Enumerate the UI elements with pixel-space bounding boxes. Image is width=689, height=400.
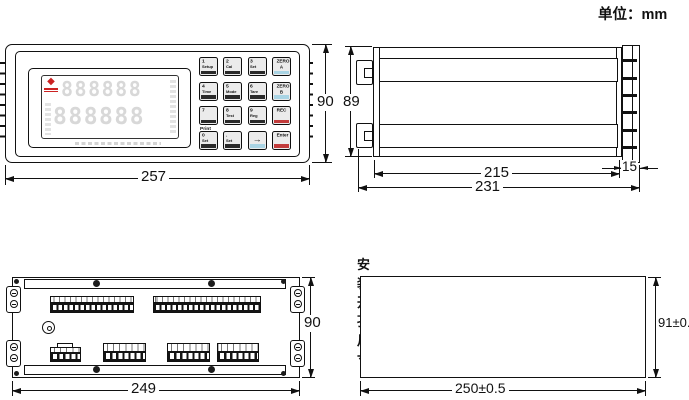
bezel-rib — [623, 146, 637, 149]
key-bar — [274, 71, 289, 75]
key-rec: REC — [272, 106, 291, 125]
clamp-screw — [10, 300, 18, 308]
key-bar — [225, 71, 240, 75]
key-bar — [225, 144, 240, 148]
dim-text-cutout-height: 91±0.5 — [657, 316, 689, 330]
dim-arrow-15-left — [602, 168, 622, 169]
clamp-screw — [294, 300, 302, 308]
bezel-rib — [623, 111, 637, 114]
key-1-setup: 1Setup — [199, 57, 218, 76]
key-num: 6 — [250, 84, 253, 89]
clamp-screw — [364, 68, 373, 78]
key-2-cal: 2Cal — [223, 57, 242, 76]
key-4-time: 4Time — [199, 82, 218, 101]
corner-screw — [281, 279, 286, 284]
corner-screw — [14, 279, 19, 284]
key-num: 2 — [226, 59, 229, 64]
key-num: ZERO — [276, 59, 286, 64]
key-3-set: 3Set — [248, 57, 267, 76]
display-digits-row2: 888888 — [53, 106, 145, 129]
key-bar — [201, 144, 216, 148]
key-num: 1 — [202, 59, 205, 64]
terminal-block-upper-right — [153, 296, 261, 313]
clamp-screw — [10, 343, 18, 351]
terminal-cells — [154, 303, 260, 312]
key-num: . — [226, 133, 227, 138]
bezel-rib — [623, 94, 637, 97]
panel-caption-strip — [75, 142, 161, 145]
key-label: Set — [250, 65, 256, 69]
brand-logo: ◆ — [43, 77, 59, 92]
key-bar — [274, 95, 289, 99]
key-num: 8 — [226, 108, 229, 113]
key-8-test: 8Test — [223, 106, 242, 125]
terminal-block-lower-2 — [167, 343, 210, 362]
display-side-legend-right — [170, 80, 176, 135]
key-num: 3 — [250, 59, 253, 64]
dim-text-rear-height: 90 — [301, 315, 324, 332]
brand-text-bar — [44, 91, 58, 93]
rear-bottom-strip — [24, 365, 286, 375]
terminal-block-lower-1 — [103, 343, 146, 362]
display-digits-row1: 888888 — [61, 79, 142, 99]
round-connector-pin — [47, 326, 52, 331]
terminal-cells — [51, 303, 133, 312]
strip-screw — [93, 280, 100, 287]
key-bar — [250, 144, 265, 148]
dim-text-total-depth: 231 — [472, 179, 503, 196]
strip-screw — [208, 280, 215, 287]
key-num: 0 — [202, 133, 205, 138]
unit-label: 单位：mm — [598, 3, 667, 24]
key-num: 9 — [250, 108, 253, 113]
key-label: B — [277, 90, 286, 94]
strip-screw — [93, 366, 100, 373]
rear-top-strip — [24, 279, 286, 289]
dim-text-front-height: 90 — [314, 94, 337, 111]
corner-screw — [281, 371, 286, 376]
print-label: Print — [200, 126, 211, 131]
clamp-screw — [364, 131, 373, 141]
key-bar — [250, 120, 265, 124]
key-zero-b: ZEROB — [272, 82, 291, 101]
bezel-inner-line — [632, 46, 633, 162]
terminal-cells — [168, 351, 209, 361]
key-enter: Enter — [272, 131, 291, 150]
key-label: Set — [226, 139, 232, 143]
key-zero-a: ZEROA — [272, 57, 291, 76]
key-label: Time — [202, 90, 211, 94]
key-5-mode: 5Mode — [223, 82, 242, 101]
dim-text-rear-width: 249 — [128, 381, 159, 398]
cutout-rect — [360, 276, 646, 378]
terminal-cells — [51, 352, 80, 361]
key-bar — [201, 71, 216, 75]
terminal-cells — [218, 351, 258, 361]
key-label: Mode — [226, 90, 236, 94]
bezel-rib — [623, 129, 637, 132]
key-bar — [225, 120, 240, 124]
dim-arrow-15-right — [640, 168, 658, 169]
key-bar — [250, 95, 265, 99]
dim-text-cutout-width: 250±0.5 — [452, 381, 509, 396]
clamp-screw — [294, 343, 302, 351]
side-rail-bottom — [379, 124, 618, 148]
bezel-rib — [623, 59, 637, 62]
clamp-screw — [10, 354, 18, 362]
key-num: 5 — [226, 84, 229, 89]
key-dot-set: .Set — [223, 131, 242, 150]
key-bar — [225, 95, 240, 99]
key-num: 4 — [202, 84, 205, 89]
clamp-screw — [294, 289, 302, 297]
dim-text-front-width: 257 — [138, 169, 169, 186]
brand-diamond-icon: ◆ — [43, 77, 59, 87]
key-label: A — [277, 65, 286, 69]
key-label: Tare — [250, 90, 258, 94]
key-num: ZERO — [276, 84, 286, 89]
key-num: REC — [276, 108, 286, 113]
strip-screw — [208, 366, 215, 373]
dim-line-cutout-height — [655, 277, 656, 378]
corner-screw — [14, 371, 19, 376]
key-bar — [274, 144, 289, 148]
rear-panel — [12, 277, 300, 378]
key-bar — [201, 95, 216, 99]
key-bar — [274, 120, 289, 124]
key-7-print: 7 — [199, 106, 218, 125]
key-num: Enter — [276, 133, 286, 138]
key-6-tare: 6Tare — [248, 82, 267, 101]
key-label: Reg — [250, 114, 258, 118]
terminal-block-lower-3 — [217, 343, 259, 362]
keypad: 1Setup 2Cal 3Set ZEROA 4Time 5Mode 6Tare… — [199, 57, 291, 150]
key-label: Setup — [202, 65, 213, 69]
key-label: Cal — [226, 65, 232, 69]
clamp-screw — [10, 289, 18, 297]
key-arrow: → — [248, 131, 267, 150]
key-label: Test — [226, 114, 234, 118]
key-bar — [250, 71, 265, 75]
dim-text-bezel-depth: 15 — [621, 160, 638, 175]
key-label: Set — [202, 139, 208, 143]
clamp-screw — [294, 354, 302, 362]
key-0-set: 0Set — [199, 131, 218, 150]
terminal-block-upper-left — [50, 296, 134, 313]
brand-text-bar — [44, 88, 58, 90]
display-side-legend-left — [45, 103, 51, 135]
power-terminal-block — [50, 347, 81, 362]
side-rail-top — [379, 58, 618, 82]
key-bar — [201, 120, 216, 124]
terminal-cells — [104, 351, 145, 361]
dim-text-side-height: 89 — [340, 94, 363, 111]
arrow-icon: → — [249, 135, 266, 144]
key-num: 7 — [202, 108, 205, 113]
key-9-reg: 9Reg — [248, 106, 267, 125]
engineering-drawing-canvas: 单位：mm ◆ 888888 888888 1Setup 2Cal 3Set Z… — [0, 0, 689, 400]
bezel-rib — [623, 77, 637, 80]
